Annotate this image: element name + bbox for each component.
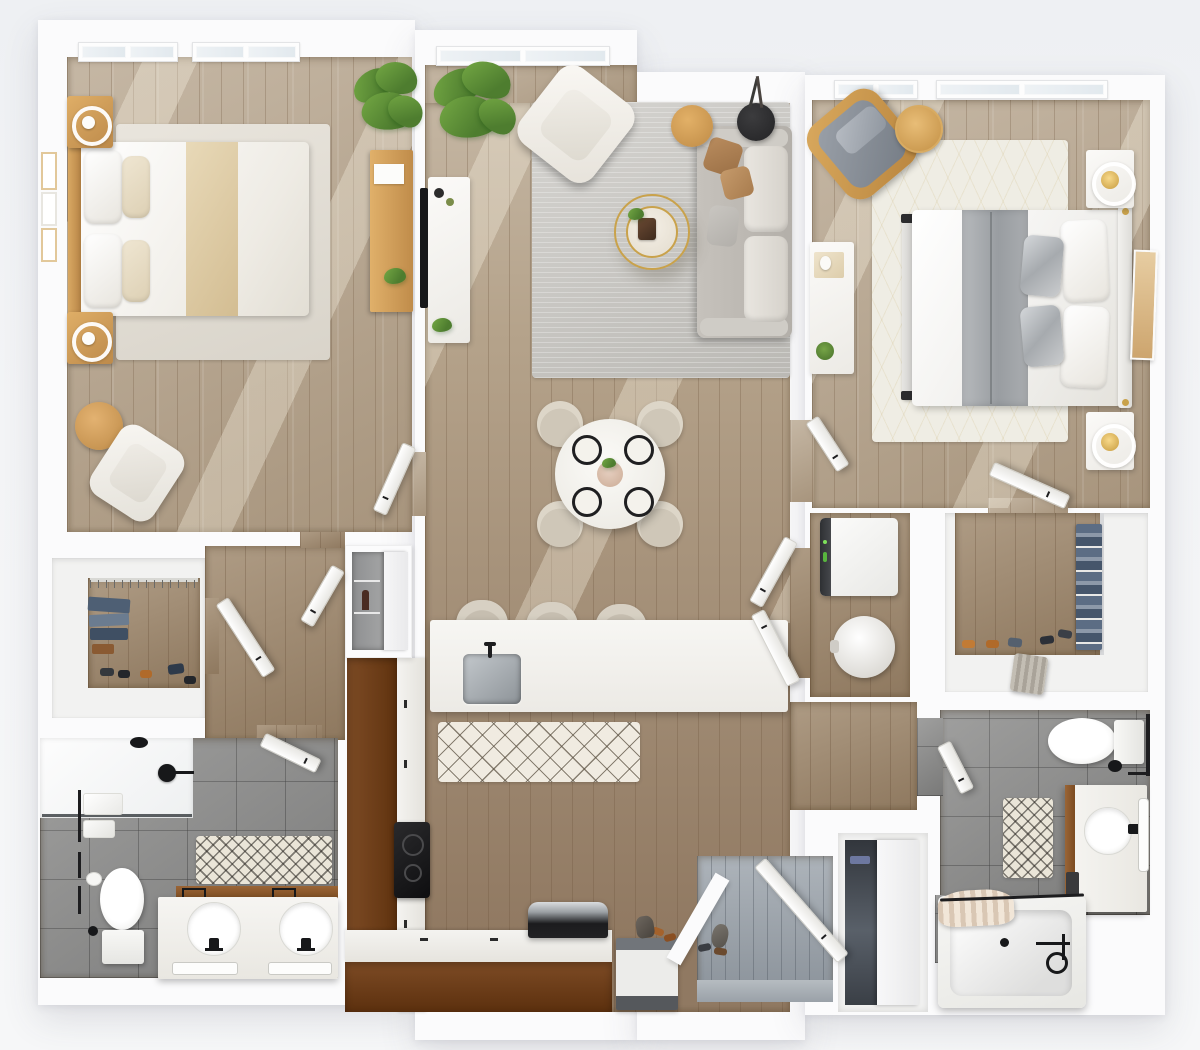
coat-closet-garment — [850, 856, 870, 864]
closet1-folded-item — [92, 644, 114, 654]
bedroom1-window-2 — [192, 42, 300, 62]
bedroom1-accent-pillow — [122, 240, 150, 302]
tub-riser — [1062, 934, 1065, 960]
window-pane — [82, 46, 126, 58]
bath2-chevron-mat — [1003, 798, 1053, 878]
window-pane — [130, 46, 174, 58]
bedroom1-bed-runner — [186, 142, 238, 316]
living-window — [436, 46, 610, 66]
closet1-hangers — [90, 580, 198, 588]
island-faucet — [488, 644, 492, 658]
closet1-shoe — [118, 670, 130, 678]
bedroom1-wall-frame — [41, 192, 57, 226]
place-setting-plate — [624, 435, 654, 465]
bath1-chevron-mat — [196, 836, 332, 884]
window-pane — [878, 84, 914, 95]
bedroom1-wall-frame — [41, 152, 57, 190]
bath2-doorway-threshold — [917, 718, 943, 796]
shower-curtain-folds — [937, 888, 1015, 928]
washer-led — [823, 540, 827, 544]
vanity2-sink — [1084, 807, 1132, 855]
linen-sliding-door — [384, 552, 408, 650]
closet2-hanging-clothes — [1076, 524, 1102, 650]
bedroom2-pillow — [1060, 219, 1110, 303]
bedroom1-pillow — [84, 234, 122, 308]
bedroom1-window-1 — [78, 42, 178, 62]
faucet-handleset — [297, 948, 315, 951]
coat-closet-sliding-door — [877, 840, 919, 1005]
bedroom2-gray-duvet — [962, 210, 1028, 406]
window-pane — [440, 50, 521, 62]
island-faucet-spout — [484, 642, 496, 646]
bedroom1-wall-frame — [41, 228, 57, 262]
duvet-fold-line — [990, 212, 992, 404]
closet1-shoe — [184, 676, 196, 684]
bedroom2-lamp-glow — [1101, 433, 1119, 451]
place-setting-plate — [572, 435, 602, 465]
linen-shelf — [354, 612, 380, 614]
toilet-paper-holder — [86, 872, 102, 886]
mirror-light-bar — [172, 962, 238, 975]
cabinet-handle — [404, 700, 407, 708]
wood-side-table — [671, 105, 713, 147]
coat-closet-clothes — [845, 840, 877, 1005]
faucet-handleset — [205, 948, 223, 951]
towel — [83, 820, 115, 838]
hall2-floor — [790, 702, 917, 810]
coffee-table-book — [638, 218, 656, 240]
floor-drain — [88, 926, 98, 936]
toilet-bowl — [100, 868, 144, 930]
linen-shelf — [354, 580, 380, 582]
sofa-back-cushion — [744, 236, 788, 322]
window-pane — [196, 46, 244, 58]
laundry-doorway-threshold — [790, 548, 812, 678]
closet1-denim-stack — [90, 628, 128, 640]
bedroom2-lamp-glow — [1101, 171, 1119, 189]
place-setting-plate — [572, 487, 602, 517]
linen-bottle — [362, 590, 369, 610]
closet1-denim-stack — [88, 597, 131, 614]
shower-arm — [174, 771, 194, 774]
cabinet-handle — [420, 938, 428, 941]
lamp-bulb — [82, 116, 95, 129]
towel-bar — [78, 886, 81, 914]
bedroom2-leaning-art — [1130, 250, 1158, 361]
cabinet-handle — [404, 760, 407, 768]
bedroom2-window-2 — [936, 80, 1108, 99]
place-setting-plate — [624, 487, 654, 517]
towel-bar — [78, 790, 81, 842]
bath2-towel-bar — [1146, 714, 1150, 776]
washer-led — [823, 552, 827, 562]
dishwasher — [616, 938, 678, 1010]
cabinet-handle — [404, 920, 407, 928]
sofa-throw-pillow-gray — [706, 205, 740, 248]
cooktop-burner — [402, 834, 424, 856]
closet1-doorway-threshold — [205, 598, 219, 674]
bedroom1-headboard — [68, 140, 81, 318]
bedroom1-pillow — [84, 150, 122, 224]
hall-doorway-threshold — [300, 532, 345, 548]
toilet2-bowl — [1048, 718, 1116, 764]
hamper-spout — [830, 640, 839, 653]
closet2-shoe — [986, 640, 999, 648]
window-pane — [940, 84, 1020, 95]
toilet-tank — [102, 930, 144, 964]
bedroom1-doorway-threshold — [412, 452, 426, 516]
closet2-shoe — [962, 640, 975, 648]
bath2-towel-hook — [1128, 772, 1148, 775]
bedroom1-accent-pillow — [122, 156, 150, 218]
vanity2-mirror-light — [1138, 798, 1149, 872]
cooktop-burner — [404, 864, 422, 882]
bedroom1-hall-floor — [205, 546, 345, 740]
desk-paper — [374, 164, 404, 184]
console-vase — [434, 188, 444, 198]
bedroom2-pillow — [1060, 305, 1110, 389]
entry-threshold — [697, 980, 833, 1002]
washing-machine — [820, 518, 898, 596]
floor-plan-canvas: { "meta": { "title": "Two-bedroom, two-b… — [0, 0, 1200, 1050]
towel-bar — [78, 852, 81, 878]
window-pane — [525, 50, 606, 62]
black-side-table — [737, 103, 775, 141]
dresser-rabbit-figurine — [820, 256, 831, 270]
island-sink — [463, 654, 521, 704]
bedroom2-side-table — [895, 105, 943, 153]
closet1-denim-stack — [89, 613, 130, 627]
tub-drain — [1000, 938, 1009, 947]
bedroom2-satin-pillow — [1019, 234, 1064, 297]
closet2-shoe — [1008, 637, 1023, 647]
closet1-shoe — [100, 668, 114, 676]
bedroom2-satin-pillow — [1019, 304, 1064, 367]
console-vase — [446, 198, 454, 206]
dresser-succulent — [816, 342, 834, 360]
closet1-shoe — [140, 670, 152, 678]
counter-bottom-wood-top — [345, 962, 612, 1012]
mirror-light-bar — [268, 962, 332, 975]
shower-ceiling-light — [130, 737, 148, 748]
toilet2-supply-valve — [1108, 760, 1122, 772]
kitchen-runner-rug — [438, 722, 640, 782]
window-pane — [1024, 84, 1104, 95]
wall-tv — [420, 188, 428, 308]
laundry-hamper — [833, 616, 895, 678]
cabinet-handle — [490, 938, 498, 941]
headboard-gold-cap — [1122, 399, 1129, 406]
closet2-laundry-basket — [1010, 653, 1049, 695]
lamp-bulb — [82, 332, 95, 345]
window-pane — [248, 46, 296, 58]
toilet2-tank — [1114, 720, 1144, 764]
bedroom2-headboard — [1118, 206, 1132, 408]
headboard-gold-cap — [1122, 208, 1129, 215]
range-oven — [528, 902, 608, 938]
towel — [83, 793, 123, 815]
